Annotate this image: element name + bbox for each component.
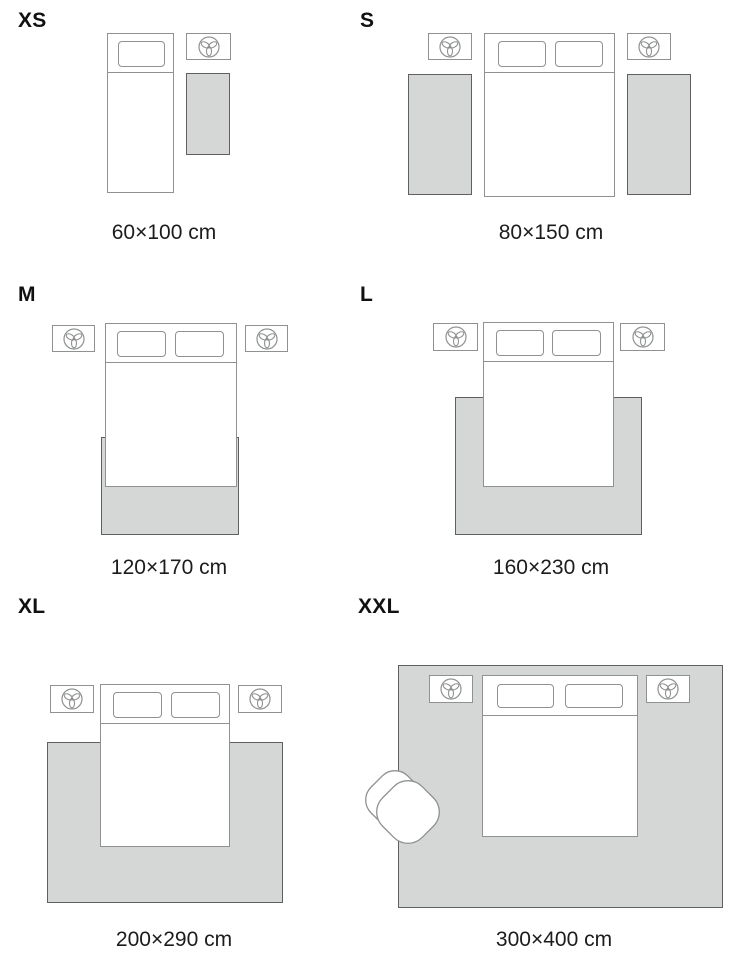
nightstand — [428, 33, 472, 60]
pillow — [117, 331, 166, 357]
rug — [408, 74, 472, 195]
rug-dimensions: 160×230 cm — [451, 556, 651, 579]
bed — [105, 323, 237, 487]
bed — [482, 675, 638, 837]
size-label: M — [18, 284, 36, 305]
pillow — [552, 330, 601, 356]
nightstand — [186, 33, 231, 60]
plant-icon — [255, 327, 279, 351]
rug-dimensions: 60×100 cm — [64, 221, 264, 244]
bed — [107, 33, 174, 193]
bed-headboard — [484, 323, 613, 362]
rug-dimensions: 120×170 cm — [69, 556, 269, 579]
nightstand — [52, 325, 95, 352]
rug-dimensions: 300×400 cm — [454, 928, 654, 951]
size-label: XS — [18, 10, 47, 31]
plant-icon — [197, 35, 221, 59]
nightstand — [245, 325, 288, 352]
pillow — [498, 41, 546, 67]
size-label: L — [360, 284, 373, 305]
plant-icon — [248, 687, 272, 711]
plant-icon — [637, 35, 661, 59]
pillow — [496, 330, 544, 356]
rug — [627, 74, 691, 195]
nightstand — [238, 685, 282, 713]
size-label: S — [360, 10, 374, 31]
bed-headboard — [483, 676, 637, 716]
bed-headboard — [106, 324, 236, 363]
bed — [483, 322, 614, 487]
plant-icon — [656, 677, 680, 701]
bed-headboard — [101, 685, 229, 724]
plant-icon — [62, 327, 86, 351]
pillow — [497, 684, 554, 708]
size-label: XXL — [358, 596, 400, 617]
nightstand — [620, 323, 665, 351]
armchair — [358, 762, 446, 850]
bed-headboard — [108, 34, 173, 73]
bed — [100, 684, 230, 847]
nightstand — [50, 685, 94, 713]
nightstand — [646, 675, 690, 703]
bed-headboard — [485, 34, 614, 73]
rug-size-guide: XS 60×100 cm S — [0, 0, 740, 960]
plant-icon — [60, 687, 84, 711]
rug — [186, 73, 230, 155]
plant-icon — [444, 325, 468, 349]
nightstand — [433, 323, 478, 351]
plant-icon — [439, 677, 463, 701]
pillow — [175, 331, 224, 357]
pillow — [565, 684, 623, 708]
plant-icon — [438, 35, 462, 59]
rug-dimensions: 80×150 cm — [451, 221, 651, 244]
nightstand — [429, 675, 473, 703]
pillow — [113, 692, 162, 718]
size-label: XL — [18, 596, 45, 617]
plant-icon — [631, 325, 655, 349]
pillow — [555, 41, 603, 67]
pillow — [118, 41, 165, 67]
pillow — [171, 692, 220, 718]
bed — [484, 33, 615, 197]
rug-dimensions: 200×290 cm — [74, 928, 274, 951]
nightstand — [627, 33, 671, 60]
